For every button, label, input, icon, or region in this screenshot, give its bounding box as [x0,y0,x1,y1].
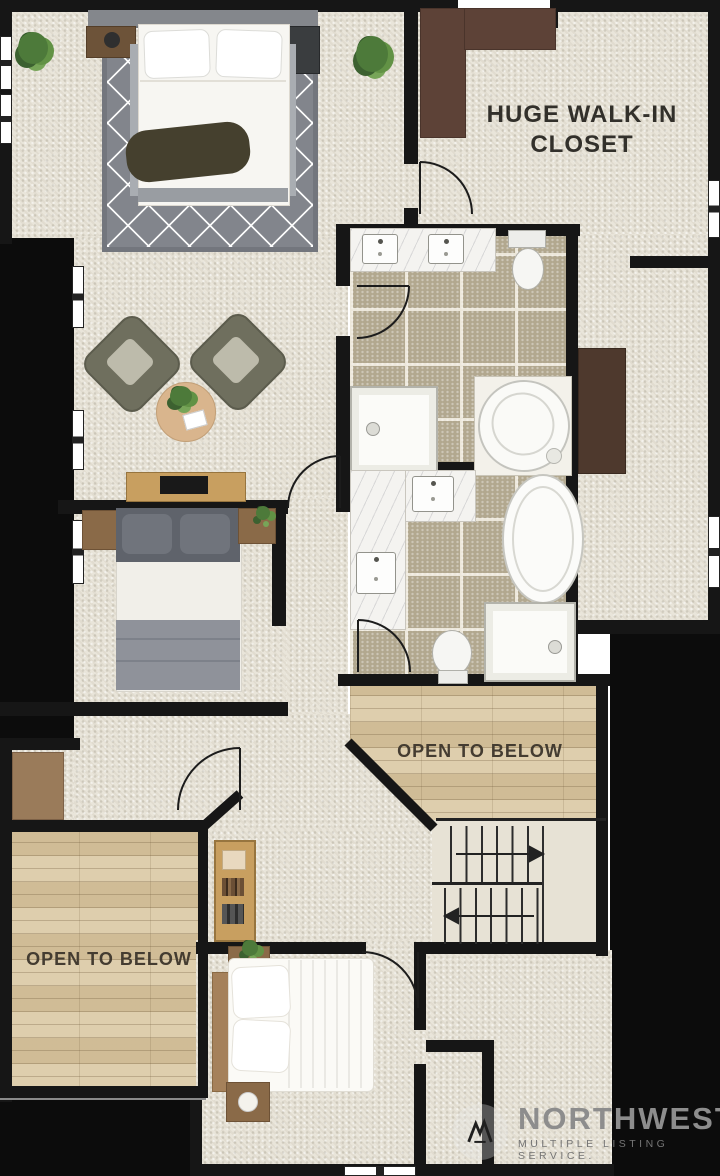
duvet-fold [116,638,240,640]
wall [0,820,208,832]
pillow [215,29,283,79]
duvet [116,620,240,690]
window [708,516,720,588]
tv [160,476,208,494]
pillow [143,29,211,79]
wall [404,8,418,164]
watermark-text: NORTHWEST MULTIPLE LISTING SERVICE. [518,1103,720,1162]
window [72,410,84,470]
window [72,266,84,328]
sink [412,476,454,512]
wall [414,1064,426,1176]
plant [242,940,258,956]
shower-drain [366,422,380,436]
footboard [138,188,288,202]
stair-landing-edge [542,826,544,942]
stair-edge [436,818,606,821]
nightstand [82,510,120,550]
shower-drain [548,640,562,654]
books [222,878,244,896]
pillow [122,514,172,554]
console-item [222,904,244,924]
void-left-lower [0,600,74,750]
open-to-below-label-mid: OPEN TO BELOW [385,740,575,763]
wall [0,738,80,750]
window [0,36,12,90]
wall [426,1040,490,1052]
wall [0,1086,208,1098]
wall [0,744,12,1102]
wall [336,336,350,512]
watermark: NORTHWEST MULTIPLE LISTING SERVICE. [452,1096,718,1168]
pillow [231,1019,292,1074]
table-plant [170,386,192,406]
duvet-fold [116,660,240,662]
void-outline [0,1098,206,1100]
lamp [104,32,120,48]
window [344,1166,416,1176]
wall [336,224,350,286]
toilet [512,248,544,290]
wall [556,0,720,12]
sink [356,552,396,594]
void-bottom-left [0,1088,206,1176]
window [708,180,720,238]
wall [196,942,366,954]
decor-bowl [238,1092,258,1112]
wardrobe [578,348,626,474]
wall [414,942,426,1030]
plant [18,32,48,64]
toilet-tank [438,670,468,684]
wall [0,702,288,716]
stair-treads-lower [444,888,542,944]
closet-organizer [464,8,556,50]
bathtub-basin [512,486,574,592]
wall [596,674,608,956]
pillow [231,965,292,1020]
shower [484,602,576,682]
floor-plan: HUGE WALK-IN CLOSET OPEN TO BELOW OPEN T… [0,0,720,1176]
watermark-logo-icon [452,1104,508,1160]
toilet-tank [508,230,546,248]
tub-faucet [546,448,562,464]
watermark-brand: NORTHWEST [518,1103,720,1134]
sink [428,234,464,264]
sink [362,234,398,264]
sheet-fold [140,80,286,82]
shelf-plant [256,506,270,520]
wall [566,620,712,634]
console-item [222,850,246,870]
wall [630,256,710,268]
pillow [180,514,230,554]
wall-shelf [12,752,64,820]
shower [350,386,438,474]
walk-in-closet-label: HUGE WALK-IN CLOSET [458,100,706,160]
watermark-tagline: MULTIPLE LISTING SERVICE. [518,1138,720,1162]
duvet-ruffle [288,960,370,1088]
stair-treads-upper [450,826,542,884]
void-right [610,630,720,1176]
vanity-counter [350,470,406,630]
stair-rail [432,882,542,885]
open-to-below-label-bottom: OPEN TO BELOW [18,948,200,971]
window [0,94,12,144]
palm-plant [356,36,388,72]
